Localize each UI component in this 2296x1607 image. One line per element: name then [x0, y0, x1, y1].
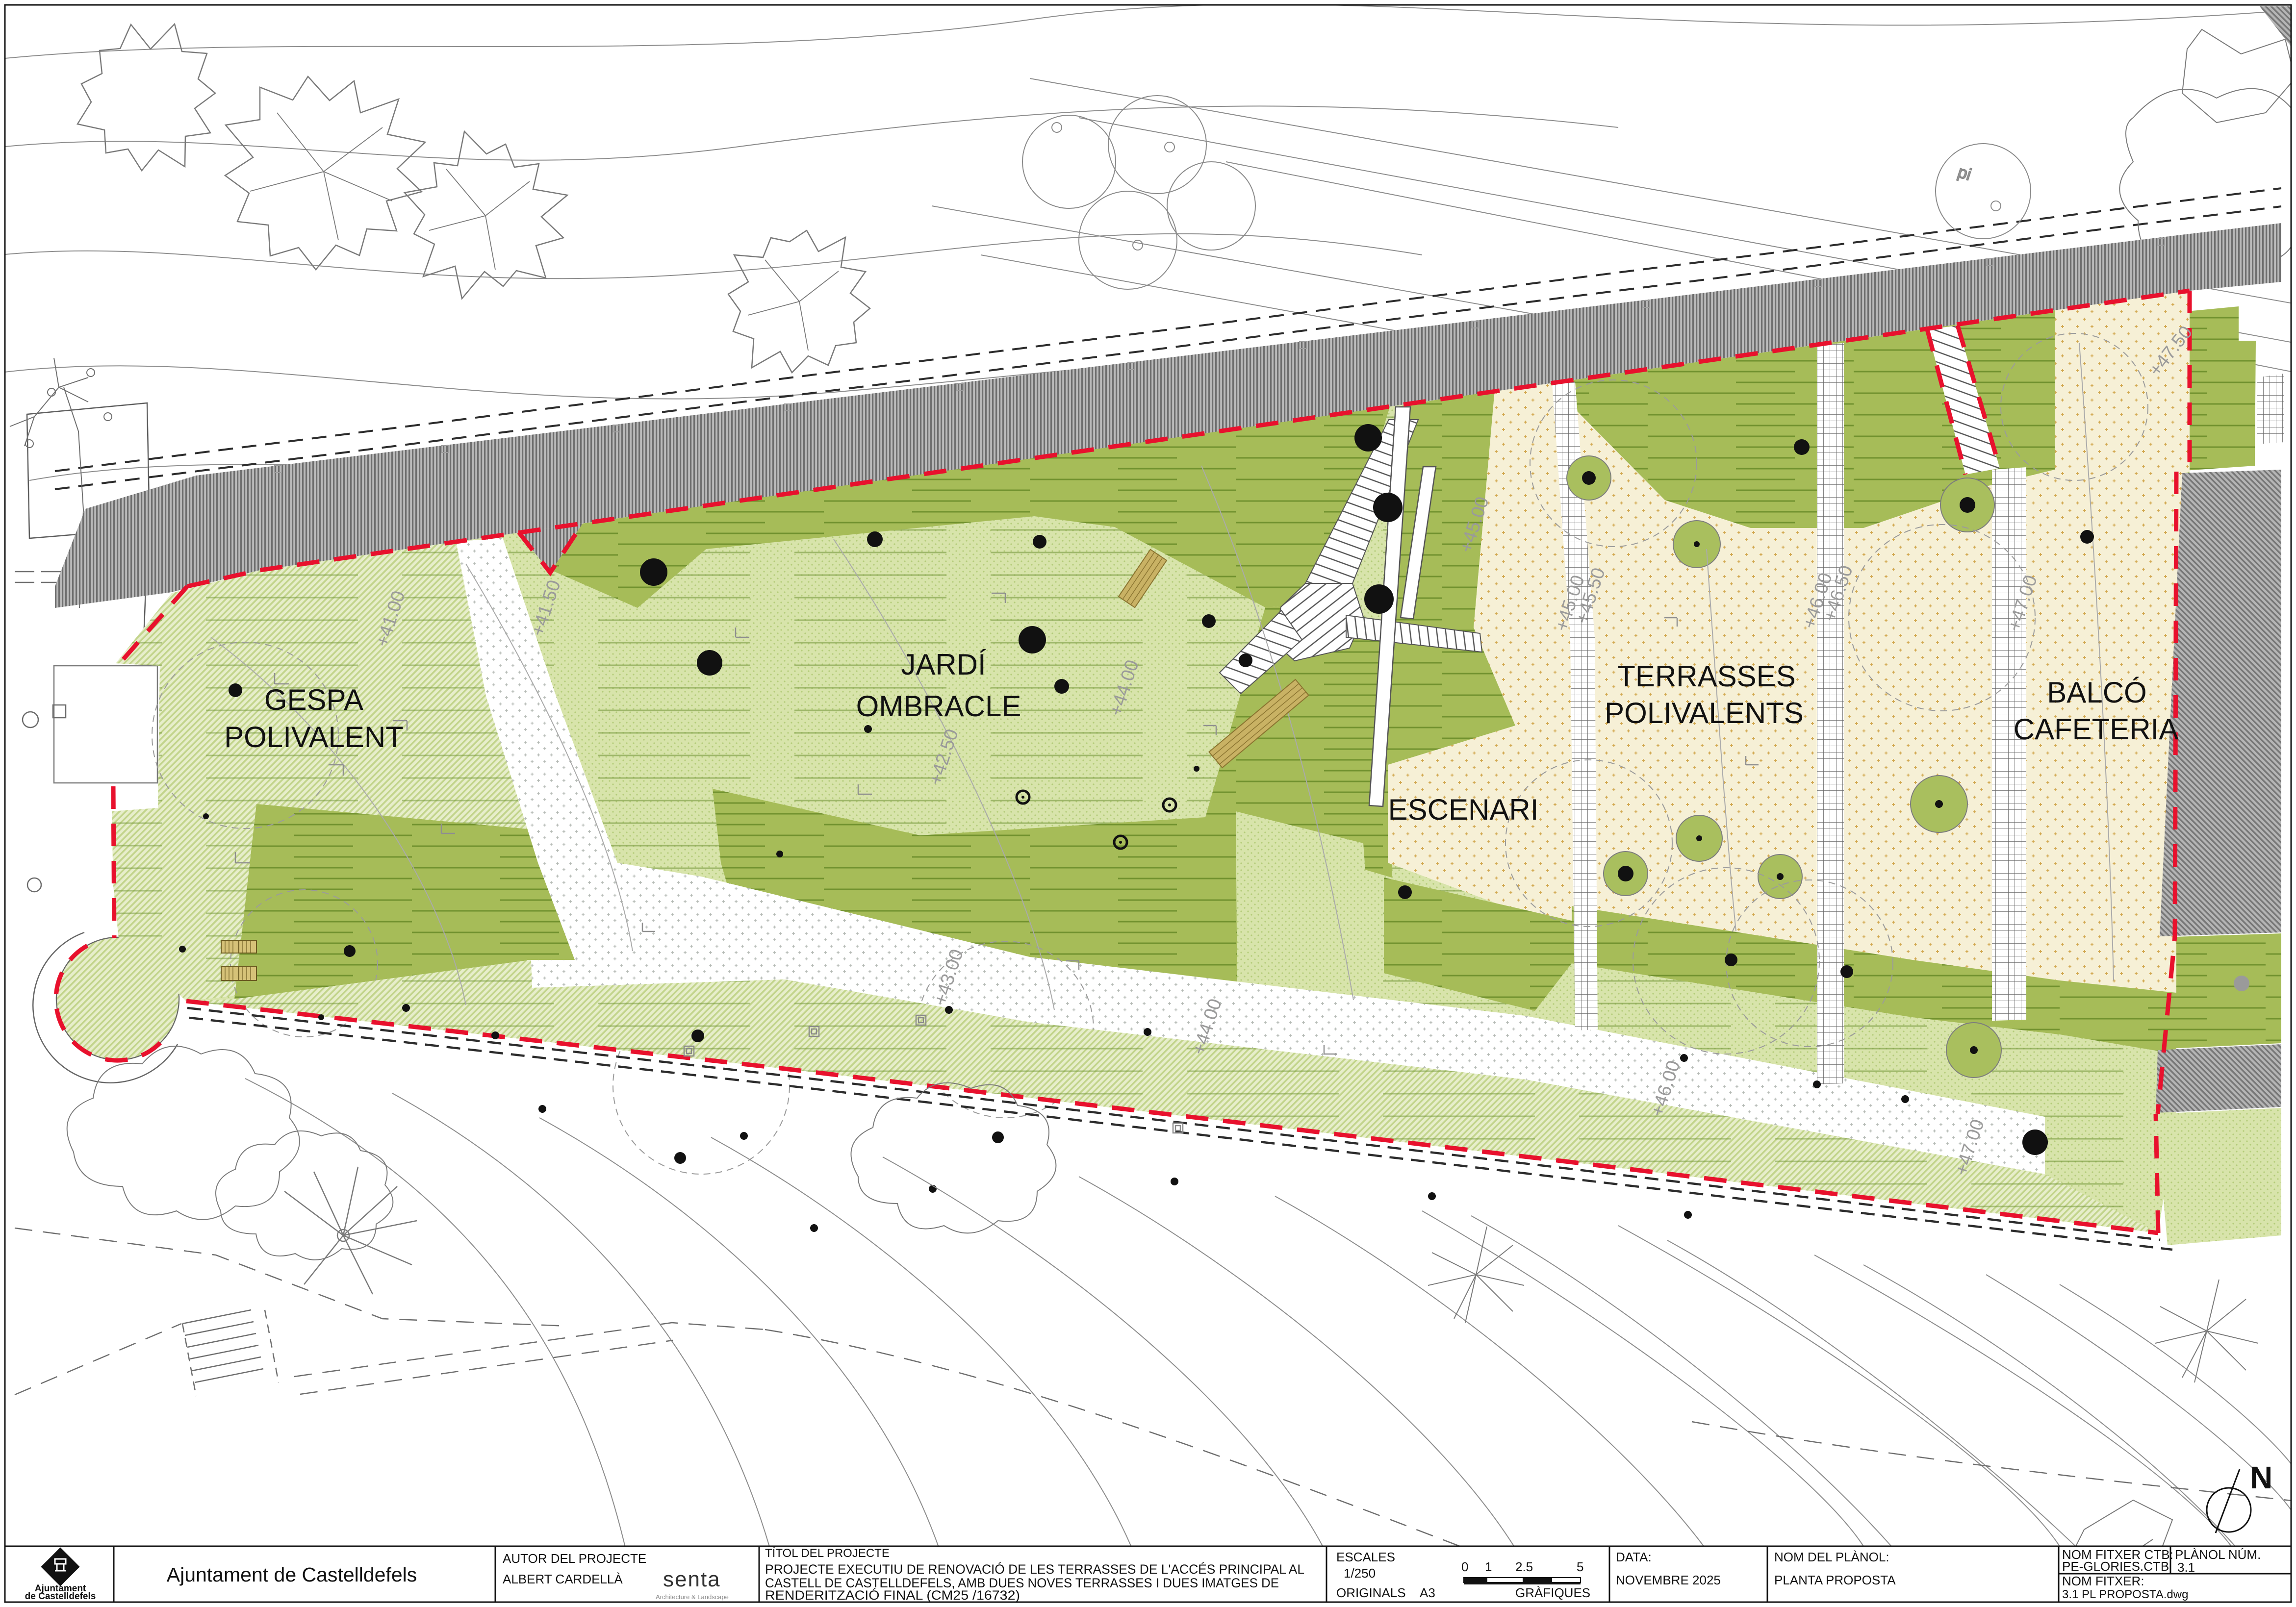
svg-text:RENDERITZACIÓ FINAL (CM25 /167: RENDERITZACIÓ FINAL (CM25 /16732): [765, 1587, 1020, 1603]
svg-text:3.1 PL PROPOSTA.dwg: 3.1 PL PROPOSTA.dwg: [2062, 1588, 2188, 1601]
svg-text:BALCÓ: BALCÓ: [2047, 676, 2146, 709]
svg-text:1: 1: [1485, 1559, 1492, 1574]
svg-text:TERRASSES: TERRASSES: [1617, 660, 1795, 693]
svg-text:CAFETERIA: CAFETERIA: [2014, 713, 2179, 746]
svg-text:Architecture & Landscape: Architecture & Landscape: [656, 1593, 729, 1601]
svg-text:TÍTOL DEL PROJECTE: TÍTOL DEL PROJECTE: [765, 1547, 890, 1560]
svg-text:de Castelldefels: de Castelldefels: [25, 1591, 96, 1602]
svg-text:DATA:: DATA:: [1616, 1550, 1652, 1564]
svg-text:1/250: 1/250: [1344, 1566, 1376, 1581]
svg-text:PLANTA PROPOSTA: PLANTA PROPOSTA: [1774, 1573, 1896, 1587]
svg-text:3.1: 3.1: [2177, 1560, 2195, 1575]
svg-text:PE-GLORIES.CTB: PE-GLORIES.CTB: [2062, 1559, 2169, 1574]
svg-text:NOVEMBRE 2025: NOVEMBRE 2025: [1616, 1573, 1721, 1587]
svg-text:ESCALES: ESCALES: [1336, 1550, 1395, 1564]
svg-text:GESPA: GESPA: [264, 683, 363, 716]
svg-text:A3: A3: [1420, 1585, 1435, 1600]
svg-text:NOM DEL PLÀNOL:: NOM DEL PLÀNOL:: [1774, 1550, 1889, 1564]
svg-text:NOM FITXER:: NOM FITXER:: [2062, 1574, 2144, 1588]
svg-text:PROJECTE EXECUTIU DE RENOVACIÓ: PROJECTE EXECUTIU DE RENOVACIÓ DE LES TE…: [765, 1561, 1304, 1577]
svg-text:GRÀFIQUES: GRÀFIQUES: [1515, 1585, 1590, 1600]
svg-text:ORIGINALS: ORIGINALS: [1336, 1585, 1406, 1600]
svg-text:senta: senta: [663, 1567, 721, 1591]
svg-text:POLIVALENT: POLIVALENT: [224, 721, 404, 753]
svg-text:AUTOR DEL PROJECTE: AUTOR DEL PROJECTE: [503, 1551, 646, 1566]
svg-text:2.5: 2.5: [1515, 1559, 1533, 1574]
svg-text:POLIVALENTS: POLIVALENTS: [1605, 697, 1804, 729]
svg-text:JARDÍ: JARDÍ: [901, 648, 986, 681]
svg-text:5: 5: [1577, 1559, 1583, 1574]
svg-text:Ajuntament de Castelldefels: Ajuntament de Castelldefels: [167, 1563, 417, 1586]
svg-text:OMBRACLE: OMBRACLE: [856, 690, 1021, 723]
svg-text:0: 0: [1461, 1559, 1468, 1574]
svg-text:N: N: [2250, 1460, 2272, 1495]
svg-text:ALBERT CARDELLÀ: ALBERT CARDELLÀ: [503, 1572, 623, 1586]
svg-text:ESCENARI: ESCENARI: [1388, 793, 1539, 826]
